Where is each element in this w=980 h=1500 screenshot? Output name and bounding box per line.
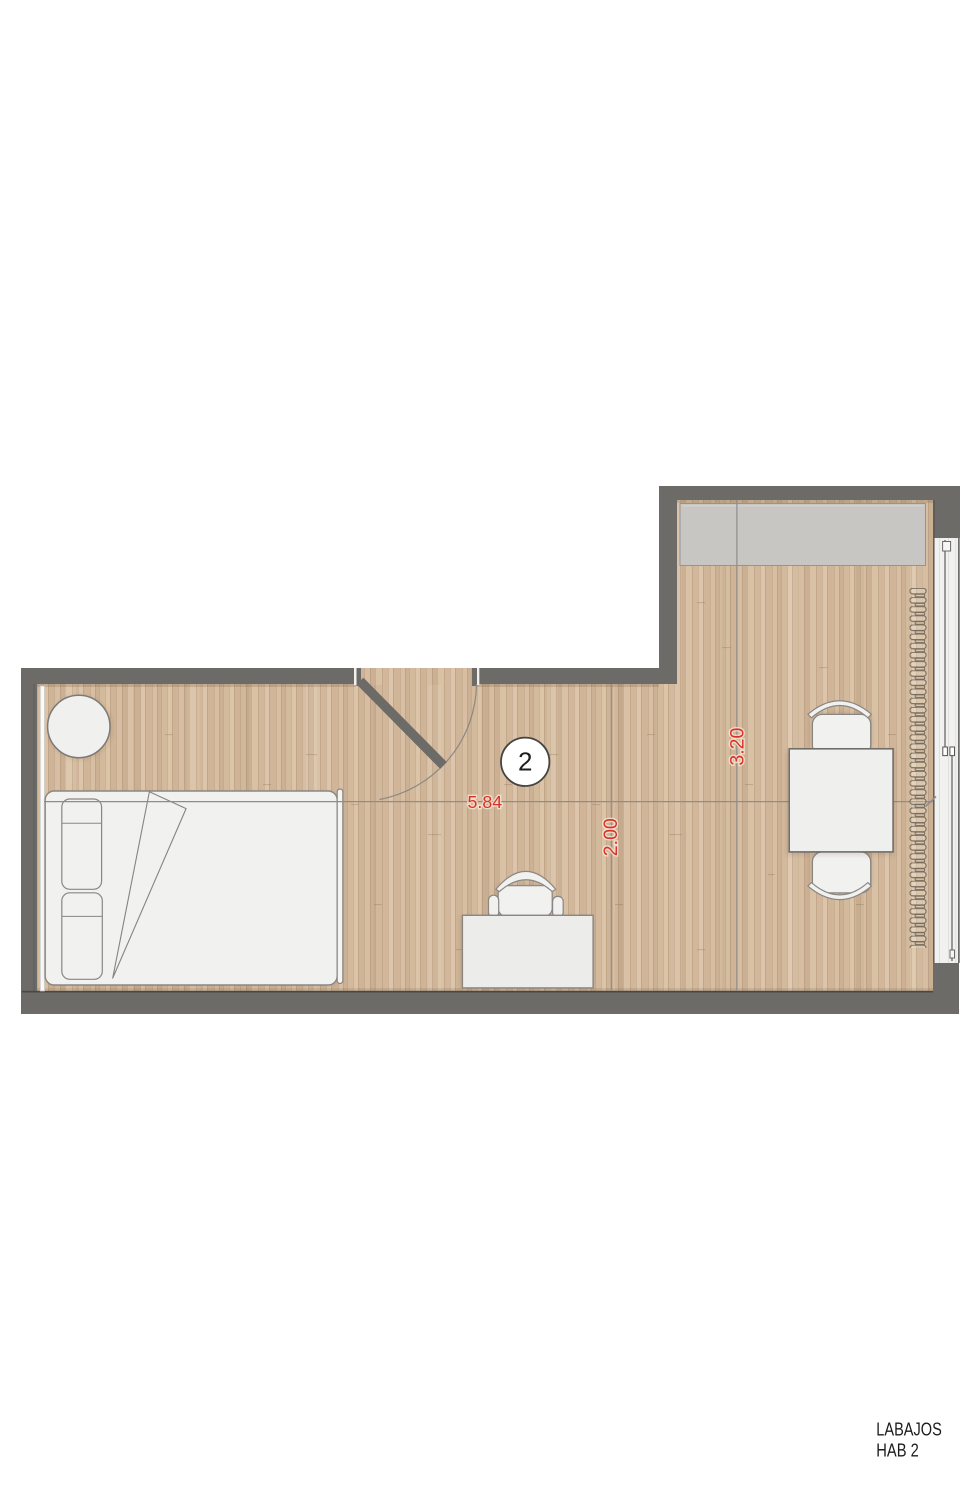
svg-text:HAB 2: HAB 2 — [876, 1440, 919, 1461]
svg-text:5.84: 5.84 — [467, 792, 502, 812]
svg-text:3.20: 3.20 — [726, 727, 748, 765]
svg-text:2.00: 2.00 — [600, 818, 622, 856]
svg-text:2: 2 — [518, 747, 532, 777]
svg-text:LABAJOS: LABAJOS — [876, 1418, 942, 1439]
